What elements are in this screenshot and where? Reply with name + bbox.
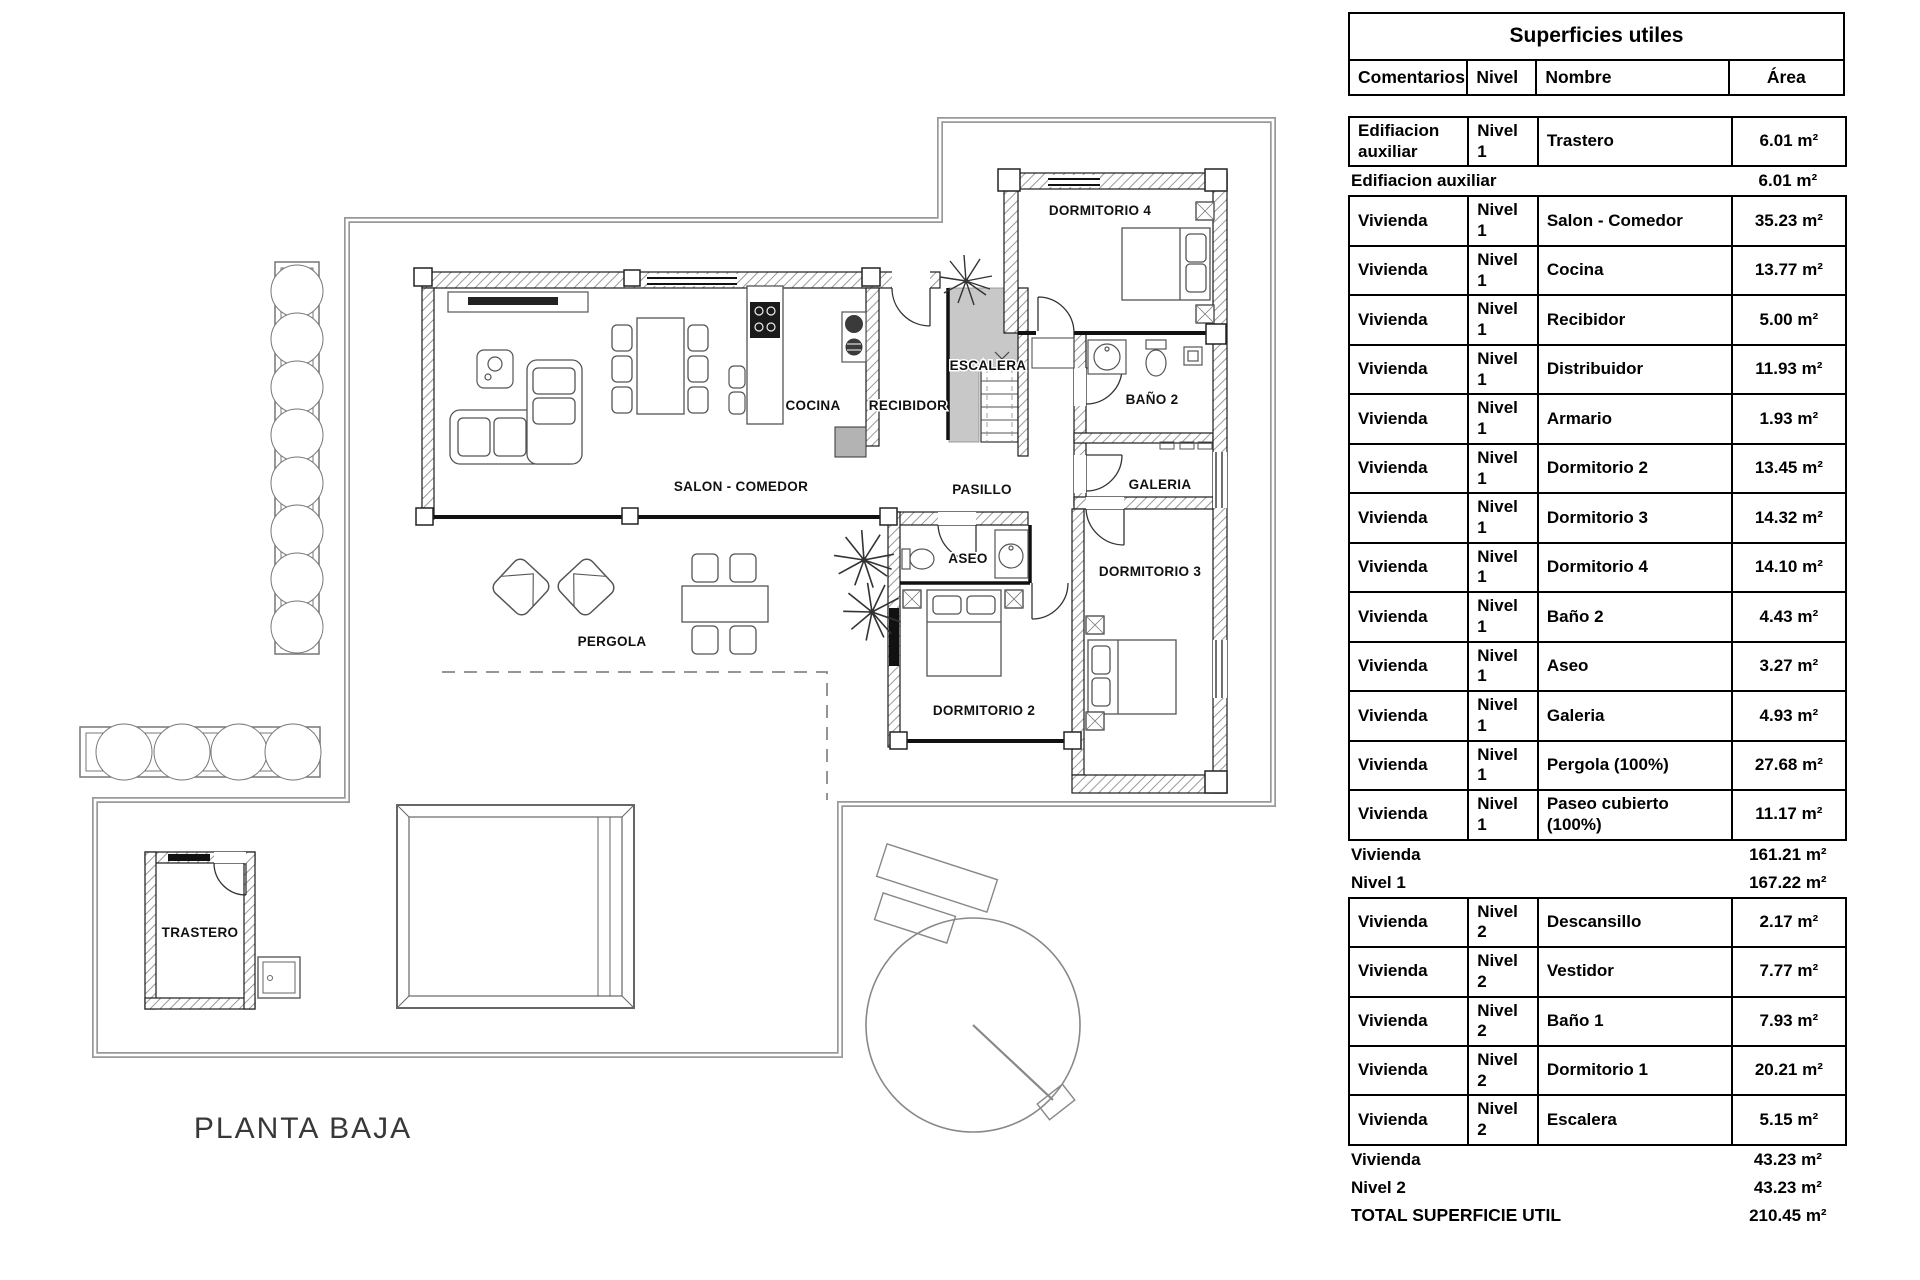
table-row: Vivienda Nivel 2 Escalera 5.15 m² <box>1349 1095 1846 1144</box>
label-dormitorio4: DORMITORIO 4 <box>1049 203 1152 218</box>
radiator-icon <box>1196 202 1214 220</box>
table-row: Vivienda Nivel 1 Dormitorio 2 13.45 m² <box>1349 444 1846 493</box>
access-pad <box>258 957 300 998</box>
label-cocina: COCINA <box>785 398 840 413</box>
nightstand-icon <box>903 590 921 608</box>
table-superficies-utiles: Superficies utiles Comentarios Nivel Nom… <box>1348 12 1845 1230</box>
column-header-nombre: Nombre <box>1537 61 1729 94</box>
subtotal-vivienda-nivel2: Vivienda 43.23 m² <box>1348 1146 1845 1174</box>
table-row: Vivienda Nivel 1 Distribuidor 11.93 m² <box>1349 345 1846 394</box>
column-header-nivel: Nivel <box>1468 61 1537 94</box>
column-header-area: Área <box>1730 61 1843 94</box>
pool <box>397 805 634 1008</box>
planter-vertical <box>271 262 323 654</box>
label-escalera: ESCALERA <box>950 358 1027 373</box>
label-trastero: TRASTERO <box>162 925 239 940</box>
label-salon: SALON - COMEDOR <box>674 479 808 494</box>
table-row: Edifiacion auxiliar Nivel 1 Trastero 6.0… <box>1349 117 1846 166</box>
label-dormitorio3: DORMITORIO 3 <box>1099 564 1202 579</box>
table-row: Vivienda Nivel 2 Descansillo 2.17 m² <box>1349 898 1846 947</box>
bed-dormitorio4 <box>1122 228 1210 300</box>
table-row: Vivienda Nivel 2 Vestidor 7.77 m² <box>1349 947 1846 996</box>
table-row: Vivienda Nivel 1 Baño 2 4.43 m² <box>1349 592 1846 641</box>
fridge <box>835 427 866 457</box>
label-pergola: PERGOLA <box>578 634 647 649</box>
utiles-block-nivel1: Vivienda Nivel 1 Salon - Comedor 35.23 m… <box>1348 195 1847 840</box>
table-row: Vivienda Nivel 1 Armario 1.93 m² <box>1349 394 1846 443</box>
bed-dormitorio2 <box>927 590 1001 676</box>
table-row: Vivienda Nivel 1 Paseo cubierto (100%) 1… <box>1349 790 1846 839</box>
page: SALON - COMEDOR COCINA RECIBIDOR ESCALER… <box>0 0 1920 1280</box>
dining-table <box>612 318 708 414</box>
subtotal-nivel2: Nivel 2 43.23 m² <box>1348 1174 1845 1202</box>
column-header-comentarios: Comentarios <box>1350 61 1468 94</box>
utiles-block-auxiliar: Edifiacion auxiliar Nivel 1 Trastero 6.0… <box>1348 116 1847 167</box>
round-feature <box>866 844 1080 1132</box>
subtotal-vivienda-nivel1: Vivienda 161.21 m² <box>1348 841 1845 869</box>
table-row: Vivienda Nivel 1 Dormitorio 4 14.10 m² <box>1349 543 1846 592</box>
subtotal-nivel1: Nivel 1 167.22 m² <box>1348 869 1845 897</box>
bathroom2-fixtures <box>1088 340 1202 376</box>
nightstand-icon <box>1005 590 1023 608</box>
label-dormitorio2: DORMITORIO 2 <box>933 703 1035 718</box>
planter-horizontal <box>80 724 321 780</box>
side-table <box>477 350 513 388</box>
area-tables: Superficies utiles Comentarios Nivel Nom… <box>1348 12 1845 1280</box>
pergola-chairs <box>490 556 617 618</box>
radiator-icon <box>1086 712 1104 730</box>
table-row: Vivienda Nivel 1 Cocina 13.77 m² <box>1349 246 1846 295</box>
bed-dormitorio3 <box>1088 640 1176 714</box>
utiles-block-nivel2: Vivienda Nivel 2 Descansillo 2.17 m² Viv… <box>1348 897 1847 1146</box>
floor-plan: SALON - COMEDOR COCINA RECIBIDOR ESCALER… <box>0 0 1345 1280</box>
label-pasillo: PASILLO <box>952 482 1012 497</box>
radiator-icon <box>1196 305 1214 323</box>
utiles-header: Superficies utiles Comentarios Nivel Nom… <box>1348 12 1845 96</box>
label-bano2: BAÑO 2 <box>1126 392 1179 407</box>
armario-closet <box>1032 338 1074 368</box>
tv-unit <box>448 292 588 312</box>
kitchen-island <box>729 286 783 424</box>
table-row: Vivienda Nivel 1 Dormitorio 3 14.32 m² <box>1349 493 1846 542</box>
utiles-title: Superficies utiles <box>1350 14 1843 61</box>
table-row: Vivienda Nivel 1 Galeria 4.93 m² <box>1349 691 1846 740</box>
kitchen-sink <box>842 312 866 362</box>
palm-tree-icon <box>834 530 894 588</box>
table-row: Vivienda Nivel 2 Baño 1 7.93 m² <box>1349 997 1846 1046</box>
subtotal-edifiacion-auxiliar: Edifiacion auxiliar 6.01 m² <box>1348 167 1845 195</box>
table-row: Vivienda Nivel 1 Pergola (100%) 27.68 m² <box>1349 741 1846 790</box>
table-row: Vivienda Nivel 2 Dormitorio 1 20.21 m² <box>1349 1046 1846 1095</box>
radiator-icon <box>1086 616 1104 634</box>
sofa <box>450 360 582 464</box>
utiles-column-headers: Comentarios Nivel Nombre Área <box>1350 61 1843 94</box>
label-aseo: ASEO <box>948 551 987 566</box>
table-row: Vivienda Nivel 1 Aseo 3.27 m² <box>1349 642 1846 691</box>
table-row: Vivienda Nivel 1 Salon - Comedor 35.23 m… <box>1349 196 1846 245</box>
label-galeria: GALERIA <box>1129 477 1192 492</box>
pergola-table <box>682 554 768 654</box>
label-planta-baja: PLANTA BAJA <box>194 1112 412 1145</box>
table-row: Vivienda Nivel 1 Recibidor 5.00 m² <box>1349 295 1846 344</box>
paving-dashed-edge <box>442 672 827 800</box>
label-recibidor: RECIBIDOR <box>869 398 947 413</box>
total-superficie-util: TOTAL SUPERFICIE UTIL 210.45 m² <box>1348 1202 1845 1230</box>
